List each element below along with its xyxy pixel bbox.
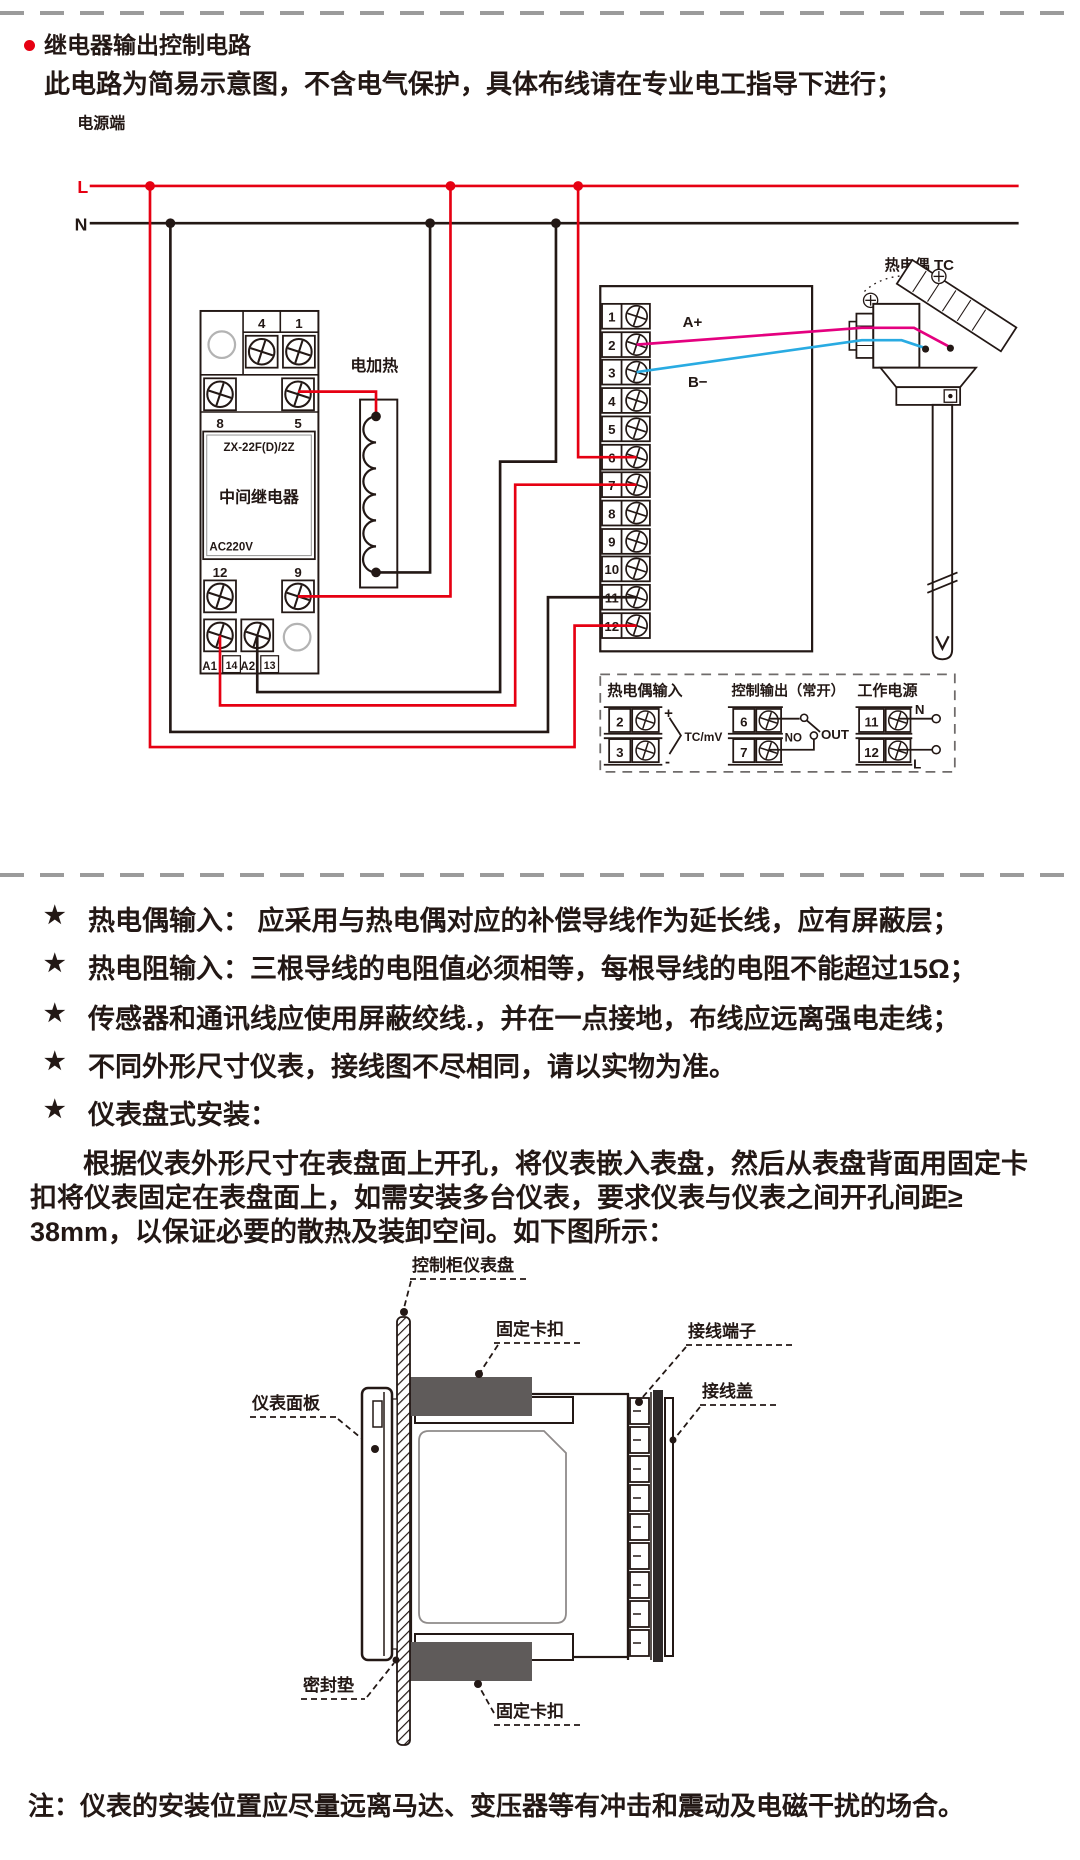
b-minus-label: B−: [688, 374, 708, 391]
relay-name: 中间继电器: [219, 487, 300, 506]
legend-tc-input: 热电偶输入 2 3 + - TC/mV: [604, 682, 723, 771]
note-item: 热电偶输入： 应采用与热电偶对应的补偿导线作为延长线，应有屏蔽层；: [88, 899, 960, 938]
terminal-number: 3: [608, 365, 615, 380]
legend: 热电偶输入 2 3 + - TC/mV 控制输出（常开）: [600, 674, 955, 772]
fixing-clip-top-label: 固定卡扣: [496, 1319, 564, 1339]
power-terminal-label: 电源端: [77, 113, 125, 132]
terminal-block-label: 接线端子: [688, 1321, 756, 1341]
relay-wiring-diagram: 电源端 L N 1 2 3 4 5: [0, 100, 1080, 880]
terminal-cover-plate: [665, 1398, 673, 1656]
legend-out-title: 控制输出（常开）: [731, 683, 844, 700]
relay-terminal-14: 14: [226, 660, 238, 672]
terminal-number: 2: [608, 338, 615, 353]
gasket-label: 密封垫: [303, 1675, 354, 1695]
terminal-number: 10: [604, 562, 619, 577]
relay-terminal-9: 9: [294, 565, 301, 580]
red-bullet-icon: [24, 40, 35, 51]
page-subtitle: 此电路为简易示意图，不含电气保护，具体布线请在专业电工指导下进行；: [44, 64, 902, 101]
relay-voltage: AC220V: [209, 541, 253, 553]
no-label: NO: [785, 733, 802, 745]
note-bullet: ★: [44, 949, 66, 978]
footnote: 注：仪表的安装位置应尽量远离马达、变压器等有冲击和震动及电磁干扰的场合。: [28, 1786, 964, 1823]
minus-sign: -: [665, 754, 670, 771]
note-item: 仪表盘式安装：: [88, 1093, 277, 1132]
relay-terminal-8: 8: [216, 416, 223, 431]
relay-terminal-4: 4: [258, 316, 266, 331]
out-label: OUT: [821, 727, 849, 742]
terminal-cover-label: 接线盖: [702, 1381, 753, 1401]
relay-model: ZX-22F(D)/2Z: [224, 442, 295, 454]
thermocouple-probe: [933, 405, 953, 659]
l-label: L: [913, 756, 921, 771]
panel-board-label: 控制柜仪表盘: [412, 1255, 514, 1275]
relay-terminal-12: 12: [213, 565, 228, 580]
legend-control-output: 控制输出（常开） 6 7 NO OUT: [728, 683, 849, 765]
fixing-clip-bottom: [410, 1642, 532, 1681]
front-panel-label: 仪表面板: [251, 1393, 321, 1413]
legend-terminal-7: 7: [740, 745, 747, 760]
tc-mv-label: TC/mV: [684, 730, 722, 744]
relay-terminal-1: 1: [295, 316, 303, 331]
legend-terminal-3: 3: [616, 745, 623, 760]
fixing-clip-bottom-label: 固定卡扣: [496, 1701, 564, 1721]
note-bullet: ★: [44, 1047, 66, 1076]
legend-tc-title: 热电偶输入: [607, 682, 682, 700]
thermocouple: 热电偶 TC: [849, 256, 1016, 659]
note-item: 热电阻输入：三根导线的电阻值必须相等，每根导线的电阻不能超过15Ω；: [88, 947, 977, 986]
terminal-number: 9: [608, 535, 615, 550]
terminal-number: 8: [608, 506, 615, 521]
legend-working-power: 工作电源 11 12 N L: [856, 682, 941, 772]
fixing-clip-top: [410, 1377, 532, 1416]
instrument-body-window: [419, 1431, 566, 1623]
terminal-block: [628, 1390, 673, 1662]
plus-sign: +: [664, 705, 673, 722]
relay-terminal-5: 5: [294, 416, 302, 431]
section-dashed-divider: [0, 873, 1080, 877]
relay-mount-hole: [209, 331, 236, 358]
panel-board: [397, 1317, 410, 1745]
relay-terminal-a2: A2: [240, 661, 255, 673]
n-label: N: [915, 702, 925, 717]
relay-terminal-13: 13: [264, 660, 276, 672]
instrument-front-panel: [362, 1388, 397, 1660]
line-l-label: L: [77, 177, 88, 197]
top-dashed-divider: [0, 11, 1080, 15]
note-item: 传感器和通讯线应使用屏蔽绞线.，并在一点接地，布线应远离强电走线；: [88, 997, 960, 1036]
a-plus-label: A+: [683, 314, 703, 331]
terminal-number: 5: [608, 422, 616, 437]
line-n-label: N: [75, 214, 88, 234]
note-item: 不同外形尺寸仪表，接线图不尽相同，请以实物为准。: [88, 1045, 736, 1084]
relay-mount-hole: [284, 624, 311, 651]
relay-terminal-a1: A1: [202, 661, 217, 673]
legend-terminal-2: 2: [616, 715, 623, 730]
panel-mount-diagram: 控制柜仪表盘 固定卡扣 接线端子 接线盖 仪表面板 密封垫 固定卡扣: [180, 1240, 800, 1790]
legend-power-title: 工作电源: [857, 682, 917, 700]
legend-terminal-12: 12: [864, 745, 879, 760]
terminal-number: 1: [608, 310, 616, 325]
heater-label: 电加热: [350, 356, 398, 375]
note-bullet: ★: [44, 999, 66, 1028]
intermediate-relay: 4 1 8 5 ZX-22F(D)/2Z 中间继电器 AC220V 12 9 A…: [201, 311, 319, 674]
legend-terminal-6: 6: [740, 715, 747, 730]
note-bullet: ★: [44, 901, 66, 930]
page-title: 继电器输出控制电路: [44, 26, 251, 60]
legend-terminal-11: 11: [864, 715, 879, 730]
note-bullet: ★: [44, 1095, 66, 1124]
terminal-number: 4: [608, 394, 616, 409]
